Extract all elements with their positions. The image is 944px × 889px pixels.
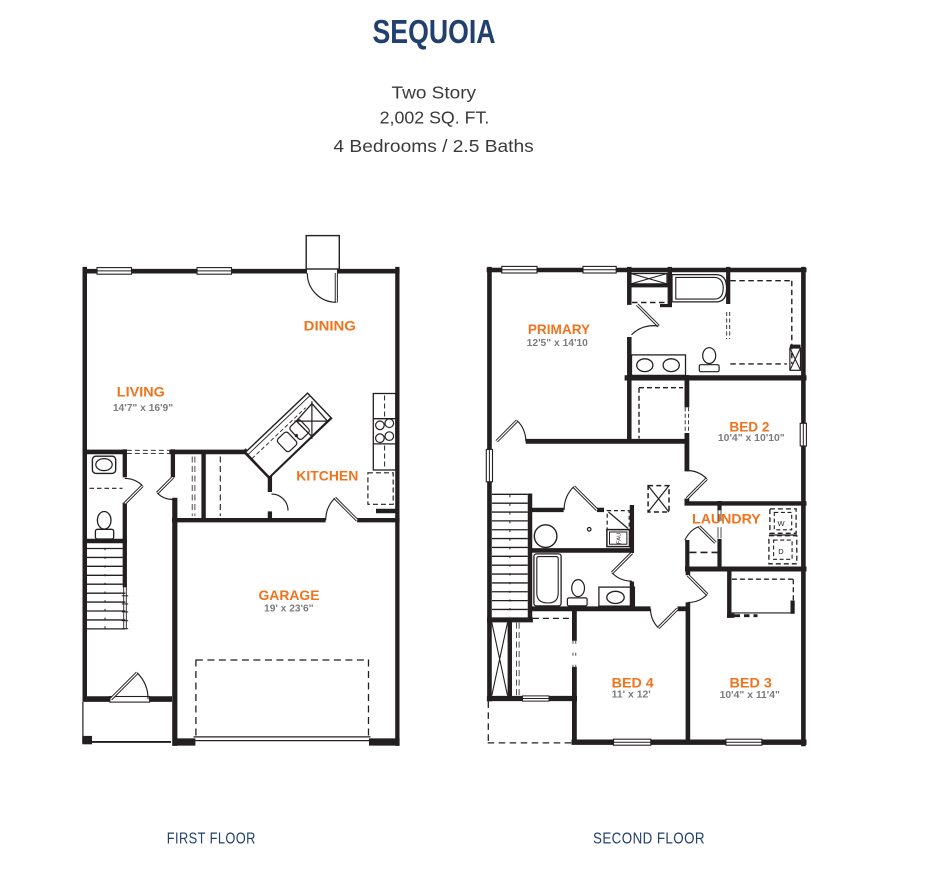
svg-text:SEQUOIA: SEQUOIA <box>373 13 496 50</box>
svg-text:19' x 23'6": 19' x 23'6" <box>264 604 314 615</box>
svg-text:Two Story: Two Story <box>392 83 477 103</box>
svg-text:D: D <box>778 547 784 556</box>
svg-text:14'7" x 16'9": 14'7" x 16'9" <box>113 403 173 414</box>
svg-text:10'4" x 10'10": 10'4" x 10'10" <box>718 433 785 444</box>
svg-text:W: W <box>777 519 785 528</box>
svg-text:BED 4: BED 4 <box>612 675 654 691</box>
svg-text:4 Bedrooms / 2.5 Baths: 4 Bedrooms / 2.5 Baths <box>333 136 534 156</box>
svg-text:LAUNDRY: LAUNDRY <box>692 511 761 527</box>
svg-text:PRIMARY: PRIMARY <box>528 321 591 337</box>
svg-text:12'5" x 14'10: 12'5" x 14'10 <box>527 338 589 349</box>
svg-text:10'4" x 11'4": 10'4" x 11'4" <box>720 690 780 701</box>
svg-text:FAU: FAU <box>616 533 622 544</box>
svg-text:KITCHEN: KITCHEN <box>296 467 358 483</box>
svg-text:BED 3: BED 3 <box>730 674 773 690</box>
svg-text:DINING: DINING <box>304 318 356 334</box>
svg-text:LIVING: LIVING <box>117 383 165 399</box>
svg-text:2,002 SQ. FT.: 2,002 SQ. FT. <box>380 107 490 127</box>
svg-text:BED 2: BED 2 <box>729 418 769 434</box>
svg-text:SECOND FLOOR: SECOND FLOOR <box>593 830 705 847</box>
svg-text:GARAGE: GARAGE <box>259 587 320 603</box>
svg-text:11' x 12': 11' x 12' <box>612 690 651 701</box>
svg-text:FIRST FLOOR: FIRST FLOOR <box>167 830 256 847</box>
